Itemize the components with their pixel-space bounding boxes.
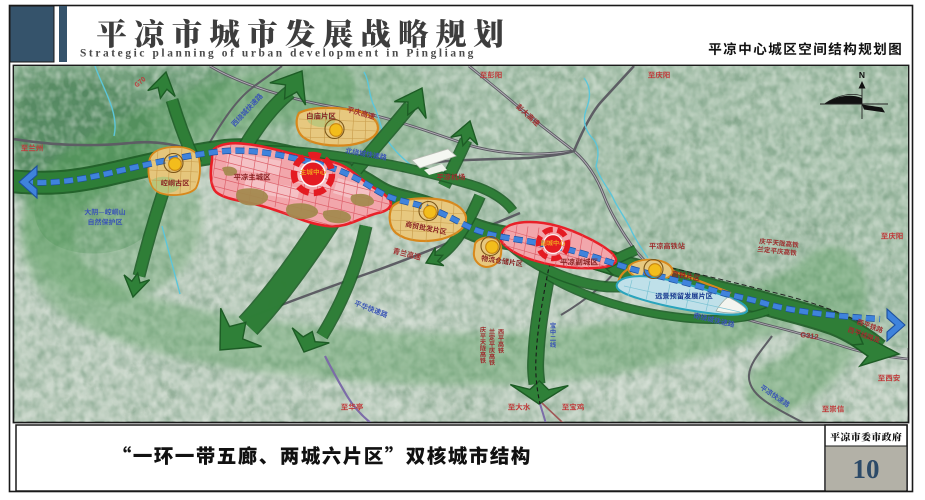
- svg-text:Strategic planning of urban de: Strategic planning of urban development …: [80, 48, 476, 60]
- svg-text:10: 10: [853, 454, 880, 484]
- svg-text:N: N: [859, 70, 865, 80]
